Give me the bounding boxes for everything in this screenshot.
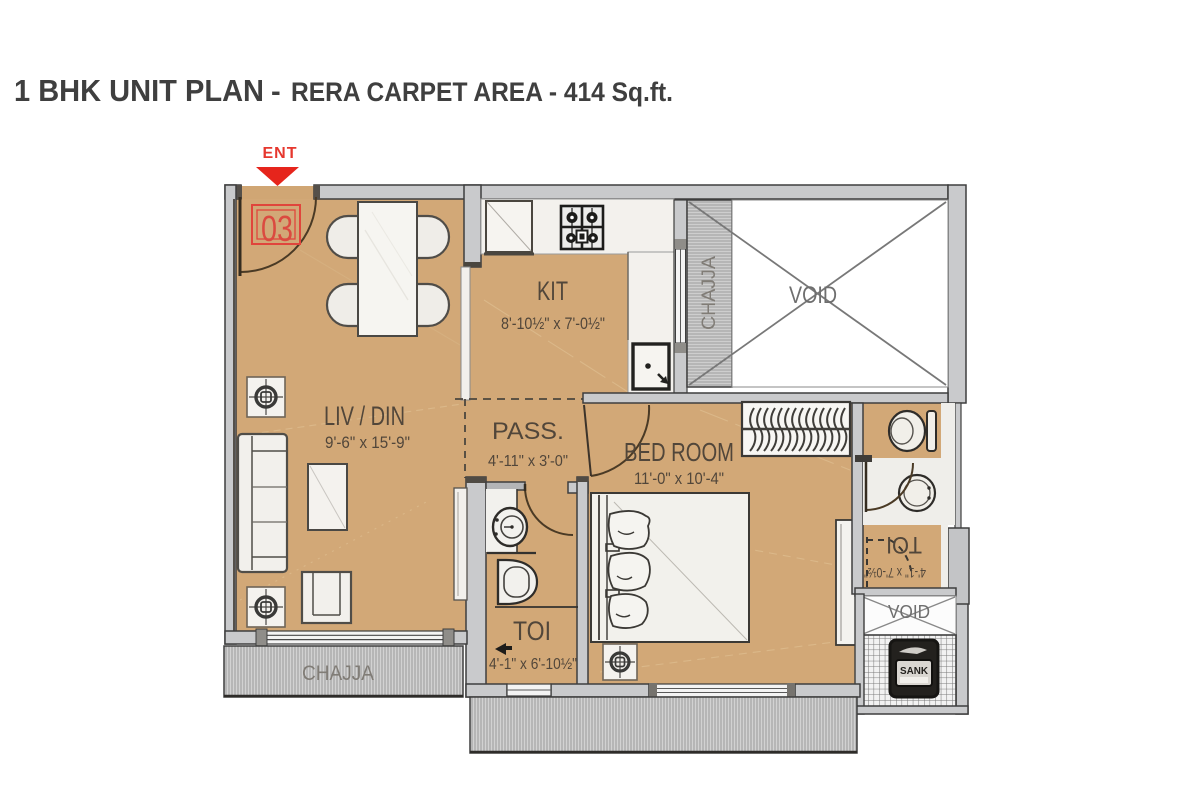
svg-text:CHAJJA: CHAJJA — [302, 662, 374, 685]
svg-text:8'-10½" x 7'-0½": 8'-10½" x 7'-0½" — [501, 314, 605, 333]
svg-text:4'-1" x 6'-10½": 4'-1" x 6'-10½" — [489, 656, 577, 673]
svg-text:CHAJJA: CHAJJA — [699, 256, 720, 330]
svg-text:VOID: VOID — [789, 282, 837, 309]
svg-text:-: - — [271, 76, 281, 108]
svg-text:BED ROOM: BED ROOM — [624, 437, 734, 467]
svg-text:4'-1" x 7'-0½": 4'-1" x 7'-0½" — [864, 565, 926, 581]
svg-text:4'-11" x 3'-0": 4'-11" x 3'-0" — [488, 453, 568, 470]
svg-text:9'-6" x 15'-9": 9'-6" x 15'-9" — [325, 433, 410, 452]
svg-text:TOI: TOI — [886, 531, 922, 558]
svg-text:1 BHK UNIT PLAN: 1 BHK UNIT PLAN — [14, 73, 264, 108]
svg-text:VOID: VOID — [888, 602, 930, 622]
svg-text:LIV / DIN: LIV / DIN — [324, 401, 405, 431]
svg-text:KIT: KIT — [537, 276, 568, 306]
svg-text:ENT: ENT — [263, 145, 298, 162]
svg-text:11'-0" x 10'-4": 11'-0" x 10'-4" — [634, 469, 724, 488]
svg-text:SANK: SANK — [900, 666, 929, 677]
svg-text:03: 03 — [261, 208, 293, 249]
svg-text:TOI: TOI — [513, 616, 551, 646]
svg-text:PASS.: PASS. — [492, 418, 564, 445]
svg-text:RERA CARPET AREA - 414 Sq.ft.: RERA CARPET AREA - 414 Sq.ft. — [291, 77, 673, 107]
